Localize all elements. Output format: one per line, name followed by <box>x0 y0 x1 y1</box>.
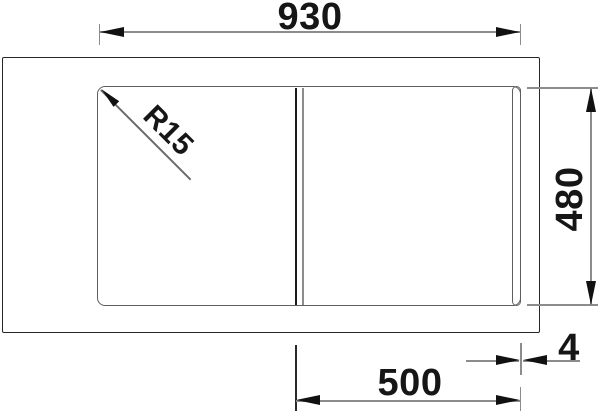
dim-500-arrow-right-icon <box>496 395 520 405</box>
basin-right-rim-edge <box>512 86 521 306</box>
dim-930-label: 930 <box>274 0 346 36</box>
basin-divider-line-offset <box>302 88 304 305</box>
dim-500-arrow-left-icon <box>296 395 320 405</box>
dim-4-arrow-pointing-left-icon <box>523 355 547 365</box>
dim-480-label: 480 <box>551 163 589 235</box>
basin-divider-line <box>295 88 297 305</box>
dim-930-arrow-right-icon <box>496 27 520 37</box>
dim-480-arrow-down-icon <box>586 281 596 305</box>
dim-4-tick <box>520 343 522 375</box>
dim-4-arrow-pointing-right-icon <box>496 355 520 365</box>
dim-4-label: 4 <box>554 329 584 367</box>
dim-930-arrow-left-icon <box>100 27 124 37</box>
dim-500-label: 500 <box>374 364 446 402</box>
sink-technical-drawing: 930 480 500 4 R15 <box>0 0 600 412</box>
dim-480-arrow-up-icon <box>586 88 596 112</box>
